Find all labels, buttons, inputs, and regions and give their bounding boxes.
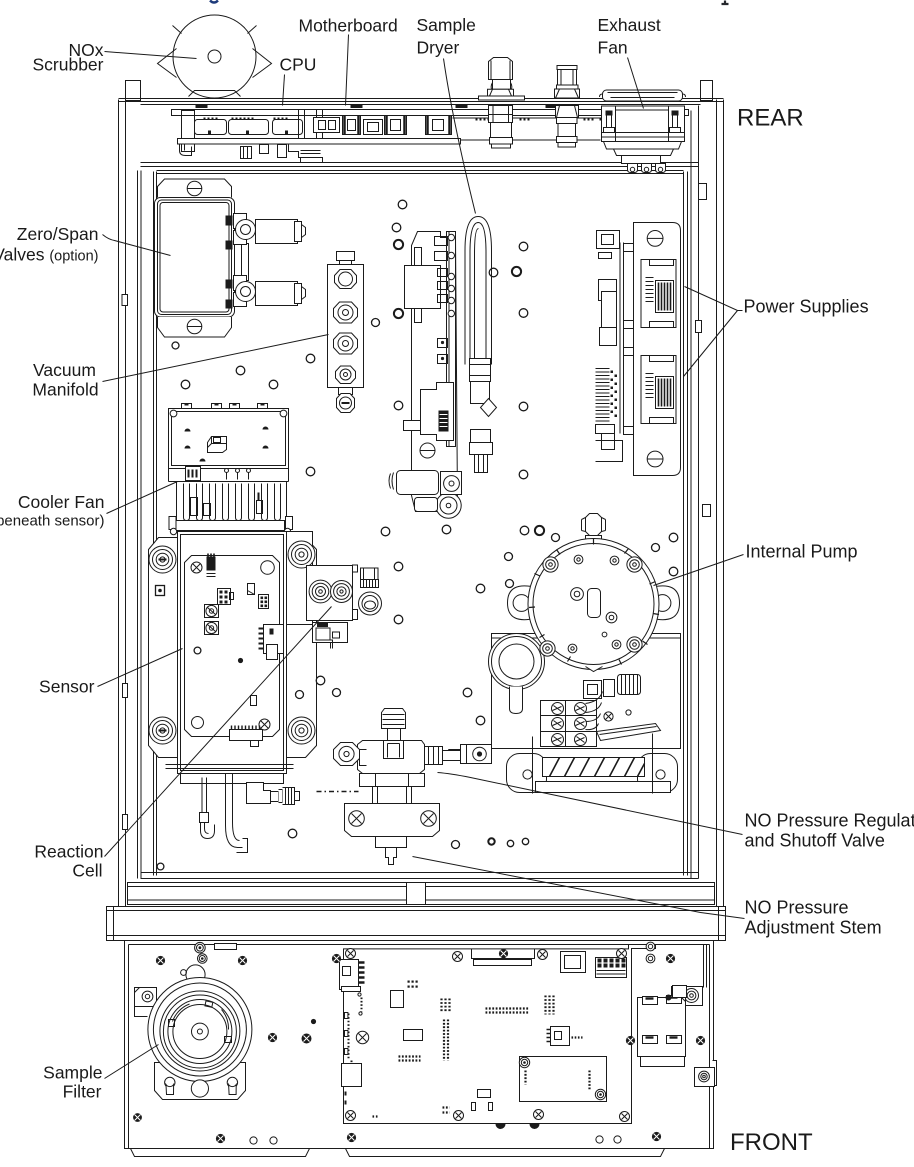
- svg-text:Exhaust: Exhaust: [598, 15, 661, 35]
- svg-text:Motherboard: Motherboard: [299, 16, 398, 36]
- svg-text:Reaction: Reaction: [34, 842, 103, 862]
- svg-text:Scrubber: Scrubber: [32, 55, 103, 75]
- svg-text:NO Pressure: NO Pressure: [745, 898, 849, 918]
- svg-text:Sample: Sample: [417, 15, 476, 35]
- svg-text:Power Supplies: Power Supplies: [744, 297, 869, 317]
- svg-text:Cell: Cell: [72, 861, 102, 881]
- svg-text:CPU: CPU: [280, 55, 317, 75]
- svg-text:and Shutoff Valve: and Shutoff Valve: [745, 831, 885, 851]
- svg-text:Filter: Filter: [63, 1082, 102, 1102]
- svg-text:REAR: REAR: [737, 105, 804, 132]
- svg-text:Dryer: Dryer: [417, 38, 460, 58]
- svg-text:FRONT: FRONT: [730, 1129, 813, 1156]
- svg-text:Cooler Fan: Cooler Fan: [18, 492, 105, 512]
- svg-text:Vacuum: Vacuum: [33, 360, 96, 380]
- svg-text:(beneath sensor): (beneath sensor): [0, 513, 105, 530]
- svg-text:Zero/Span: Zero/Span: [17, 224, 99, 244]
- svg-text:Manifold: Manifold: [32, 380, 98, 400]
- svg-text:NO Pressure Regulator: NO Pressure Regulator: [745, 811, 914, 831]
- svg-text:Internal Pump: Internal Pump: [746, 542, 858, 562]
- svg-text:Valves (option): Valves (option): [0, 245, 99, 265]
- svg-text:Adjustment Stem: Adjustment Stem: [745, 918, 882, 938]
- svg-text:Sample: Sample: [43, 1063, 102, 1083]
- svg-text:Sensor: Sensor: [39, 677, 95, 697]
- svg-text:Fan: Fan: [598, 38, 628, 58]
